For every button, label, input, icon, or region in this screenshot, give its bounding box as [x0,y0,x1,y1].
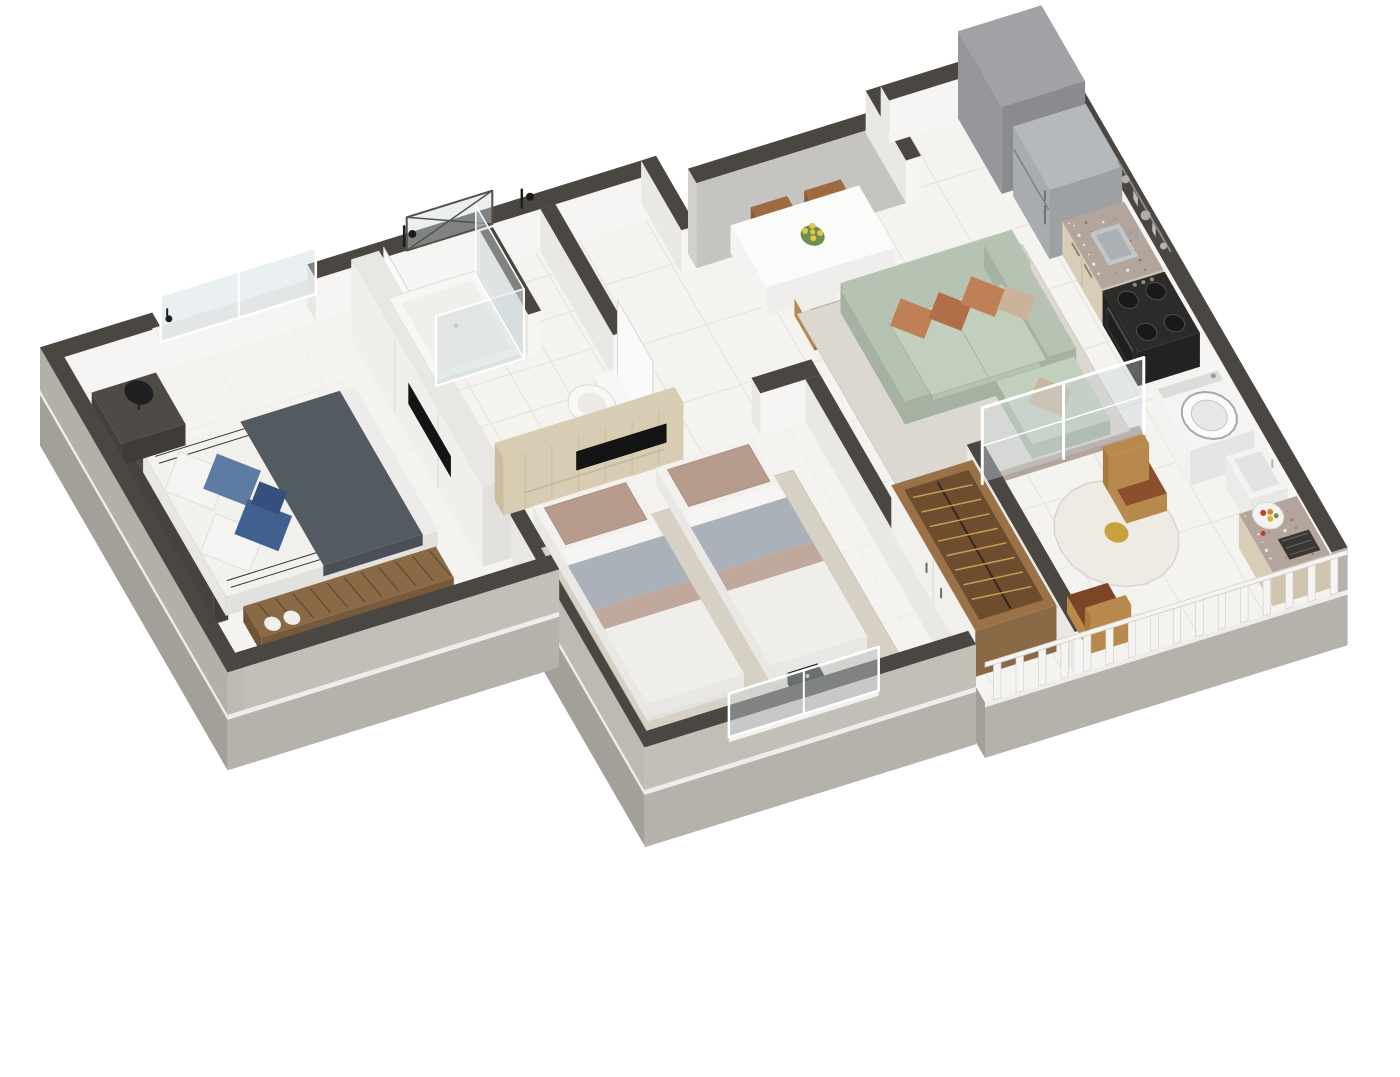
apartment-3d-floorplan-svg [0,0,1400,1077]
apartment [40,5,1348,847]
floorplan-canvas [0,0,1400,1077]
